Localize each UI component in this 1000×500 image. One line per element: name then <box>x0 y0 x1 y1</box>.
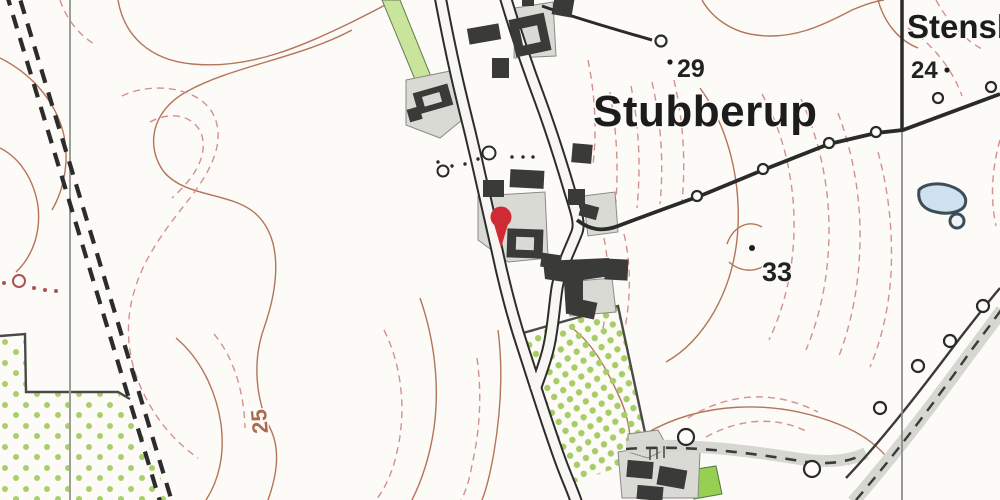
contour-label-25: 25 <box>246 408 273 435</box>
spot-height-24: 24 <box>911 57 938 84</box>
spot-height-29: 29 <box>677 55 705 83</box>
place-label-stensby: Stensb <box>907 8 1000 45</box>
map-canvas[interactable]: Stubberup Stensb 29 33 24 25 <box>0 0 1000 500</box>
village-label: Stubberup <box>593 87 817 136</box>
spot-height-33: 33 <box>762 257 792 287</box>
